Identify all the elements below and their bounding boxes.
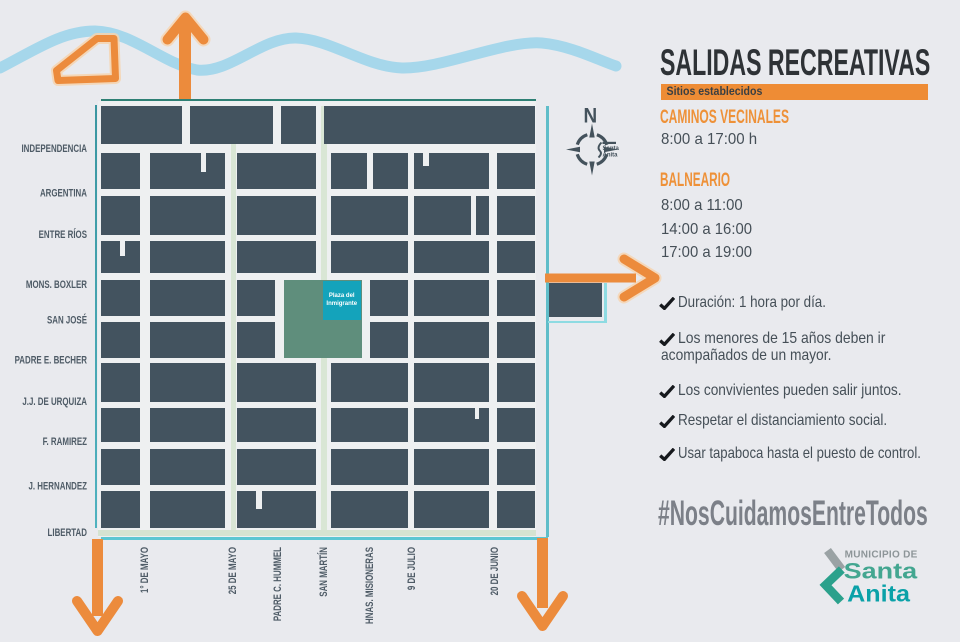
svg-text:J. HERNANDEZ: J. HERNANDEZ <box>29 480 88 493</box>
svg-text:ENTRE RÍOS: ENTRE RÍOS <box>39 229 88 242</box>
svg-text:F. RAMIREZ: F. RAMIREZ <box>43 436 88 449</box>
svg-text:20 DE JUNIO: 20 DE JUNIO <box>489 547 502 596</box>
svg-text:SAN MARTÍN: SAN MARTÍN <box>318 547 331 597</box>
svg-text:J.J. DE URQUIZA: J.J. DE URQUIZA <box>22 396 87 409</box>
svg-text:HNAS. MISIONERAS: HNAS. MISIONERAS <box>364 547 377 624</box>
svg-text:PADRE E. BECHER: PADRE E. BECHER <box>15 354 87 367</box>
svg-text:INDEPENDENCIA: INDEPENDENCIA <box>21 143 87 156</box>
svg-text:SAN JOSÉ: SAN JOSÉ <box>47 314 88 327</box>
svg-text:Santa: Santa <box>844 559 918 583</box>
svg-text:25 DE MAYO: 25 DE MAYO <box>227 547 240 595</box>
svg-text:Anita: Anita <box>847 581 910 607</box>
svg-text:PADRE C. HUMMEL: PADRE C. HUMMEL <box>272 547 285 621</box>
svg-text:ARGENTINA: ARGENTINA <box>40 187 87 200</box>
svg-text:9 DE JULIO: 9 DE JULIO <box>406 547 419 591</box>
svg-text:LIBERTAD: LIBERTAD <box>48 527 87 540</box>
svg-text:1° DE MAYO: 1° DE MAYO <box>139 547 152 593</box>
svg-text:MONS. BOXLER: MONS. BOXLER <box>26 279 87 292</box>
